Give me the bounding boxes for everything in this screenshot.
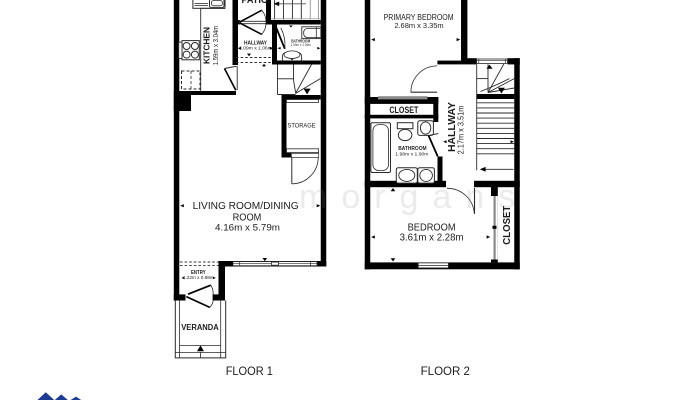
svg-text:morgans: morgans [299, 178, 529, 216]
svg-text:3.61m x 2.28m: 3.61m x 2.28m [400, 233, 464, 244]
svg-text:4.16m x 5.79m: 4.16m x 5.79m [215, 223, 280, 234]
svg-text:1.09m x 1.06m: 1.09m x 1.06m [239, 45, 272, 50]
svg-text:1.39m x 1.06m: 1.39m x 1.06m [290, 42, 311, 47]
svg-text:1.22m x 0.88m: 1.22m x 0.88m [183, 275, 214, 280]
svg-text:2.17m x 3.51m: 2.17m x 3.51m [456, 106, 466, 155]
svg-text:FLOOR 2: FLOOR 2 [421, 364, 470, 378]
svg-text:FLOOR 1: FLOOR 1 [226, 364, 273, 378]
svg-text:VERANDA: VERANDA [181, 322, 219, 332]
svg-text:1.98m x 1.90m: 1.98m x 1.90m [395, 151, 428, 157]
svg-text:LIVING ROOM/DINING: LIVING ROOM/DINING [193, 201, 299, 212]
svg-text:2.68m x 3.35m: 2.68m x 3.35m [394, 21, 443, 30]
svg-text:BATHROOM: BATHROOM [398, 146, 426, 152]
svg-text:CLOSET: CLOSET [389, 105, 419, 115]
svg-text:STORAGE: STORAGE [288, 123, 316, 130]
svg-text:1.59m x 3.04m: 1.59m x 3.04m [211, 26, 220, 66]
svg-text:PATIO: PATIO [241, 0, 268, 6]
svg-text:KITCHEN: KITCHEN [202, 27, 212, 64]
